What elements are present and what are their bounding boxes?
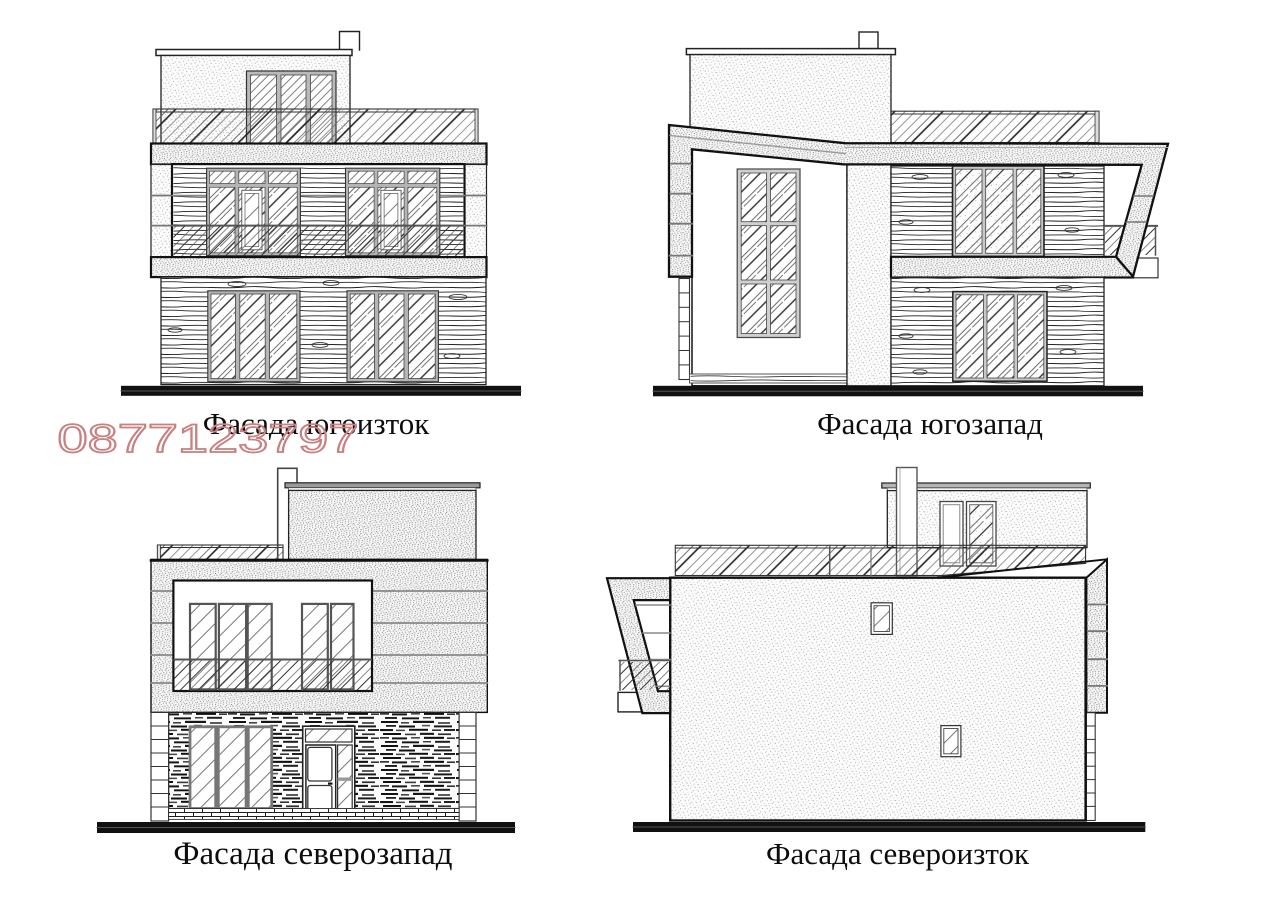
svg-text:0877123797: 0877123797 — [58, 417, 359, 461]
svg-text:Фасада северозапад: Фасада северозапад — [173, 836, 452, 872]
svg-text:Фасада югозапад: Фасада югозапад — [817, 406, 1043, 441]
svg-text:Фасада североизток: Фасада североизток — [766, 836, 1030, 871]
